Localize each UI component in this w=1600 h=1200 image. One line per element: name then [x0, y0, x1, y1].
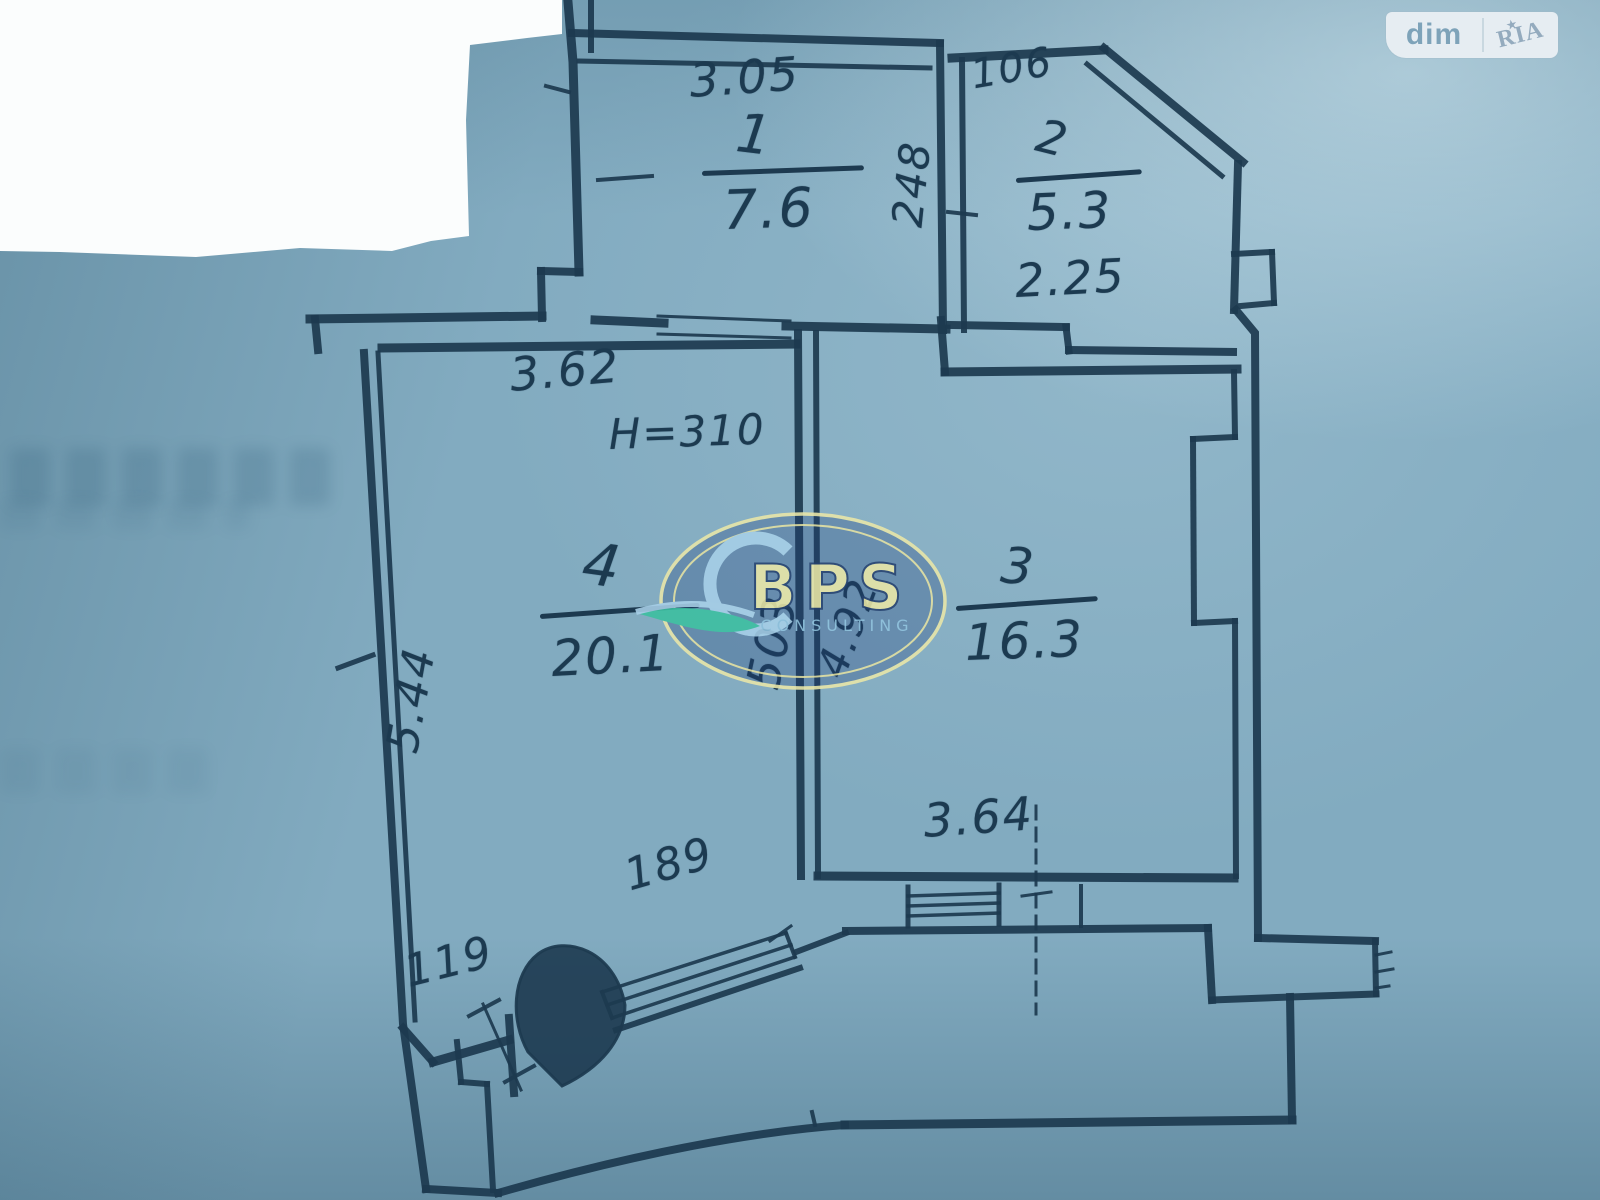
dim-wall-248: 248: [887, 139, 938, 229]
ria-logo: ★ RIA: [1484, 22, 1558, 49]
room4-ceiling-height: H=310: [608, 409, 766, 456]
room3-area: 16.3: [964, 614, 1085, 668]
bps-consulting-watermark: BPS CONSULTING: [600, 505, 970, 700]
dim-room4-width: 3.62: [508, 342, 622, 397]
bps-logo-subtext: CONSULTING: [760, 616, 913, 635]
room2-area: 5.3: [1026, 185, 1113, 238]
bps-logo-text: BPS: [749, 551, 910, 624]
room1-number: 1: [733, 106, 776, 164]
room1-area: 7.6: [722, 181, 816, 238]
scanned-floor-plan: 3.05 1 7.6 248 106 2 5.3 2.25 3.62 H=310…: [0, 0, 1600, 1200]
dim-room2-width: 2.25: [1014, 252, 1127, 304]
room3-number: 3: [999, 540, 1038, 593]
dim-room3-width: 3.64: [922, 790, 1035, 844]
dim-ria-badge: dim ★ RIA: [1386, 12, 1558, 58]
dim-logo: dim: [1386, 18, 1482, 52]
dim-room1-width: 3.05: [688, 50, 801, 104]
